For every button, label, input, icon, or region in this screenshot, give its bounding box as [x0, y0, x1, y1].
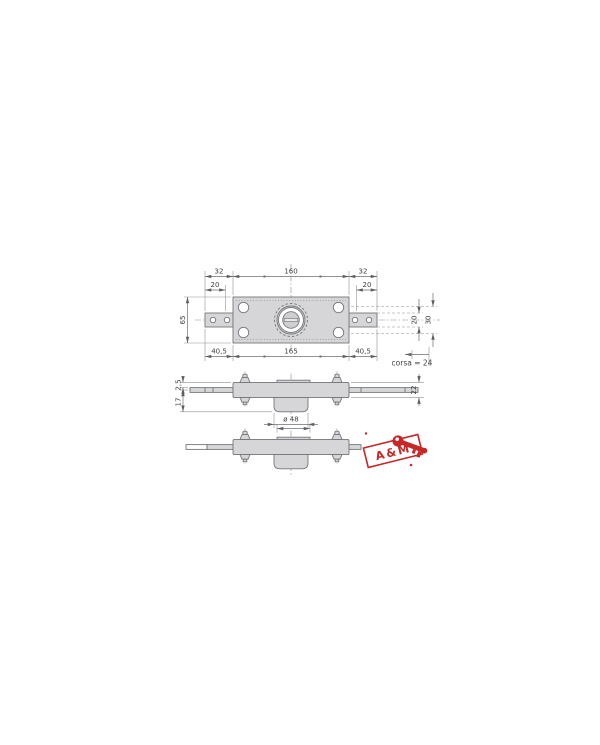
side-view-extended	[190, 372, 418, 418]
left-rod-extended	[207, 445, 233, 450]
dim-case-thickness: 22	[410, 386, 418, 395]
dim-rod-offset: 2,5	[175, 379, 183, 390]
side-view-thrown	[186, 425, 361, 475]
left-arm-hole	[224, 317, 229, 322]
right-rod-retracted	[349, 445, 361, 450]
dim-right-inner: 20	[411, 316, 419, 325]
product-drawing-image: 32 160 32 20 20 65 20 30 40,5 165 40,5 c…	[0, 0, 600, 745]
dim-hole-offset-right: 20	[363, 281, 372, 289]
dim-cylinder-diameter: ø 48	[283, 416, 298, 424]
right-arm-hole	[352, 317, 357, 322]
fixing-hole	[238, 327, 248, 337]
rod-stroke-segment	[186, 445, 207, 450]
dim-plate-height: 65	[179, 316, 187, 325]
technical-drawing-canvas: 32 160 32 20 20 65 20 30 40,5 165 40,5 c…	[0, 0, 600, 745]
cylinder-body	[274, 398, 308, 412]
dim-span-right: 32	[359, 268, 368, 276]
cylinder-body	[274, 455, 308, 469]
dim-hole-offset-left: 20	[211, 281, 220, 289]
fixing-hole	[238, 302, 248, 312]
right-rod	[349, 388, 418, 393]
left-rod	[190, 388, 233, 393]
stamp-ink-speck	[410, 464, 413, 467]
dim-right-outer: 30	[425, 316, 433, 325]
dim-cylinder-depth: 17	[175, 398, 183, 407]
fixing-hole	[333, 327, 343, 337]
left-arm-hole	[210, 317, 215, 322]
stamp-ink-speck	[365, 432, 367, 434]
dim-span-left: 32	[215, 268, 224, 276]
top-view	[195, 264, 440, 352]
dim-arm-right: 40,5	[355, 348, 371, 356]
dim-arm-left: 40,5	[211, 348, 227, 356]
lock-case	[233, 382, 349, 397]
fixing-hole	[333, 302, 343, 312]
dim-span-center: 160	[284, 268, 297, 276]
dim-plate-length: 165	[284, 348, 297, 356]
dim-stroke-note: corsa = 24	[392, 359, 433, 368]
lock-case	[233, 439, 349, 454]
right-arm-hole	[366, 317, 371, 322]
key-slot	[284, 318, 298, 321]
brand-stamp: A&M	[363, 432, 429, 467]
